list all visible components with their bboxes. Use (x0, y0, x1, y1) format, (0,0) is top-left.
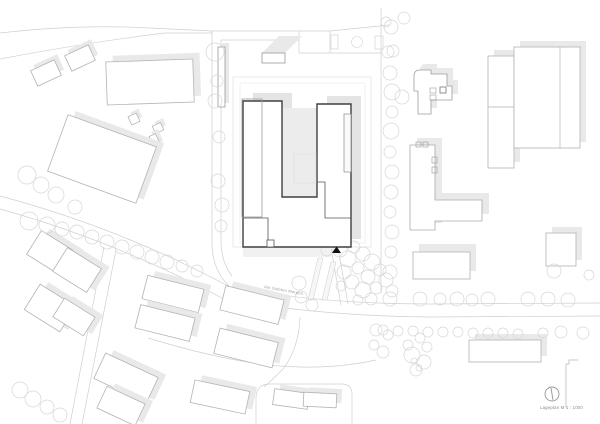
tree-icon (191, 265, 203, 277)
tree-icon (176, 260, 188, 272)
tree-icon (145, 250, 159, 264)
tree-icon (393, 326, 403, 336)
tree-icon (577, 327, 589, 339)
tree-icon (40, 400, 54, 414)
tree-icon (369, 340, 379, 350)
tree-icon (584, 270, 594, 280)
tree-icon (466, 294, 478, 306)
tree-icon (211, 174, 225, 188)
tree-icon (337, 265, 351, 279)
context-building (469, 334, 547, 362)
tree-icon (370, 324, 382, 336)
tree-icon (385, 246, 397, 258)
courtyard (282, 108, 317, 197)
tree-icon (383, 123, 399, 139)
context-building (48, 109, 165, 205)
tree-icon (53, 408, 67, 422)
context-building (514, 41, 586, 148)
context-building (63, 39, 100, 71)
tree-icon (55, 222, 69, 236)
tree-icon (306, 299, 318, 311)
tree-icon (345, 275, 359, 289)
tree-icon (434, 293, 446, 305)
context-building-corner (566, 360, 578, 408)
tree-icon (398, 12, 410, 24)
tree-icon (374, 264, 386, 276)
tree-icon (468, 328, 478, 338)
context-building-l-shaped (410, 138, 489, 230)
tree-icon (384, 206, 396, 218)
title-block: Lageplan M 1 : 1000 (540, 387, 583, 410)
context-building (29, 54, 66, 86)
site-plan: Am Siebten Morgen Lageplan M 1 : 1000 (0, 0, 600, 424)
context-building (413, 244, 476, 279)
tree-icon (18, 166, 36, 184)
tree-icon (555, 326, 567, 338)
tree-icon (160, 255, 174, 269)
tree-icon (385, 165, 399, 179)
tree-icon (438, 327, 448, 337)
tree-icon (115, 240, 129, 254)
tree-icon (395, 90, 409, 104)
tree-icon (48, 187, 64, 203)
central-building (242, 93, 361, 253)
tree-icon (215, 198, 229, 212)
context-building (218, 43, 229, 107)
tree-icon (561, 293, 575, 307)
context-building-northeast (414, 64, 458, 114)
context-building (546, 227, 582, 266)
tree-icon (415, 333, 425, 343)
tree-icon (384, 185, 398, 199)
context-building (106, 53, 202, 105)
context-building (303, 387, 342, 408)
tree-icon (340, 251, 356, 267)
tree-icon (365, 293, 377, 305)
tree-icon (521, 292, 535, 306)
site-plan-canvas: Am Siebten Morgen Lageplan M 1 : 1000 (0, 0, 600, 424)
tree-icon (355, 282, 371, 298)
tree-icon (386, 106, 398, 118)
tree-icon (292, 276, 306, 290)
scale-label: Lageplan M 1 : 1000 (540, 405, 583, 410)
tree-icon (25, 391, 41, 407)
tree-icon (383, 66, 397, 80)
tree-icon (20, 212, 38, 230)
tree-icon (422, 342, 432, 352)
tree-icon (364, 254, 380, 270)
tree-icon (541, 292, 555, 306)
tree-icon (453, 327, 463, 337)
tree-icon (352, 262, 364, 274)
context-building (190, 374, 257, 415)
tree-icon (383, 292, 397, 306)
context-building (151, 118, 167, 133)
context-building (214, 322, 286, 369)
tree-icon (384, 146, 396, 158)
tree-icon (213, 131, 225, 143)
parking-area (331, 35, 383, 49)
tree-icon (100, 235, 114, 249)
tree-icon (417, 355, 431, 369)
tree-icon (68, 200, 82, 214)
tree-icon (33, 177, 49, 193)
balcony-strip (344, 114, 351, 172)
context-building (127, 109, 144, 125)
tree-icon (385, 225, 399, 239)
tree-icon (403, 340, 413, 350)
tree-icon (356, 247, 370, 261)
tree-icon (377, 346, 389, 358)
tree-icon (410, 364, 422, 376)
